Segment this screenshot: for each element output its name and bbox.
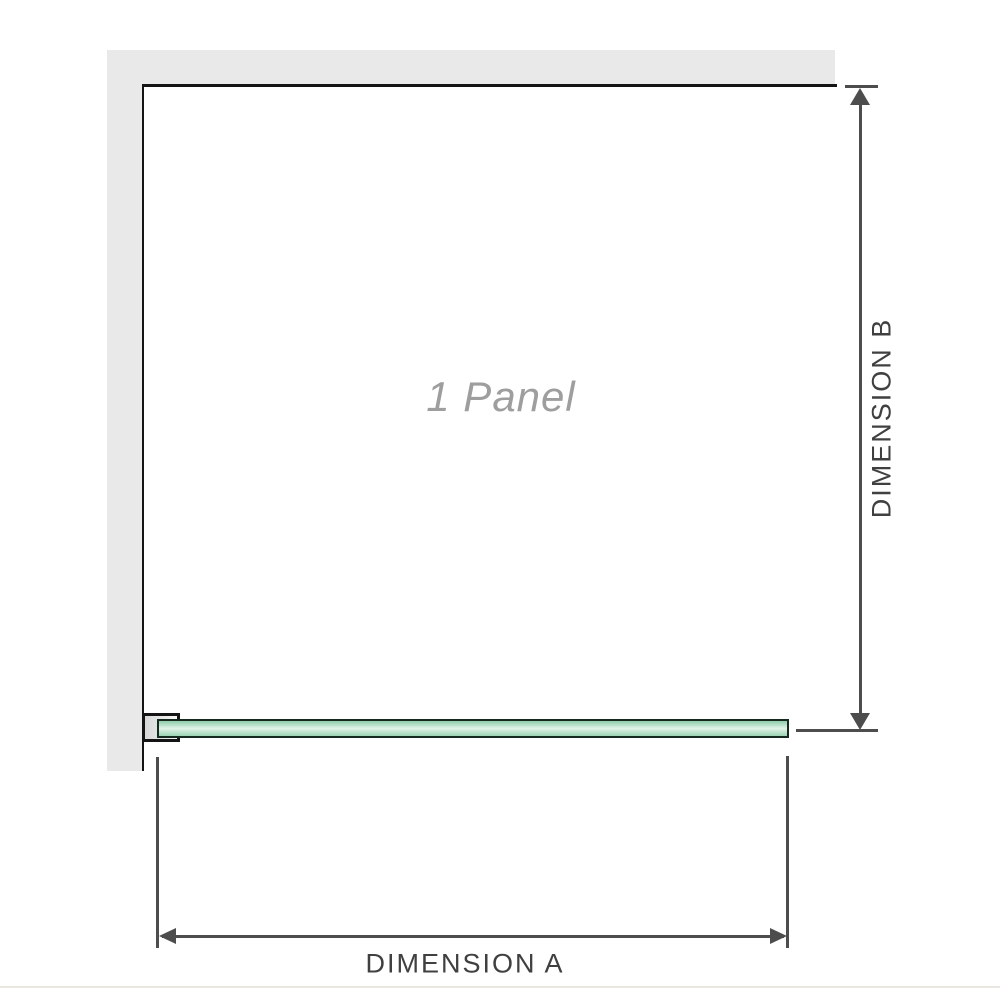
panel-count-label: 1 Panel xyxy=(426,373,575,421)
dim-a-arrow-right-icon xyxy=(770,928,787,944)
dim-a-extension-left xyxy=(156,757,159,948)
dim-a-line xyxy=(162,935,784,938)
dimension-diagram: 1 Panel DIMENSION B DIMENSION A xyxy=(0,0,1000,1000)
image-bottom-edge-line xyxy=(0,986,1000,988)
glass-panel-plan-view xyxy=(157,719,789,738)
dim-b-arrow-down-icon xyxy=(850,713,870,730)
dim-a-extension-right xyxy=(786,756,789,948)
dimension-b-label: DIMENSION B xyxy=(867,318,898,519)
dimension-a-label: DIMENSION A xyxy=(365,949,564,980)
dim-a-arrow-left-icon xyxy=(159,928,176,944)
wall-strip-left xyxy=(107,50,142,771)
dim-b-line xyxy=(859,92,862,722)
dim-b-arrow-up-icon xyxy=(850,88,870,105)
wall-strip-top xyxy=(107,50,835,84)
